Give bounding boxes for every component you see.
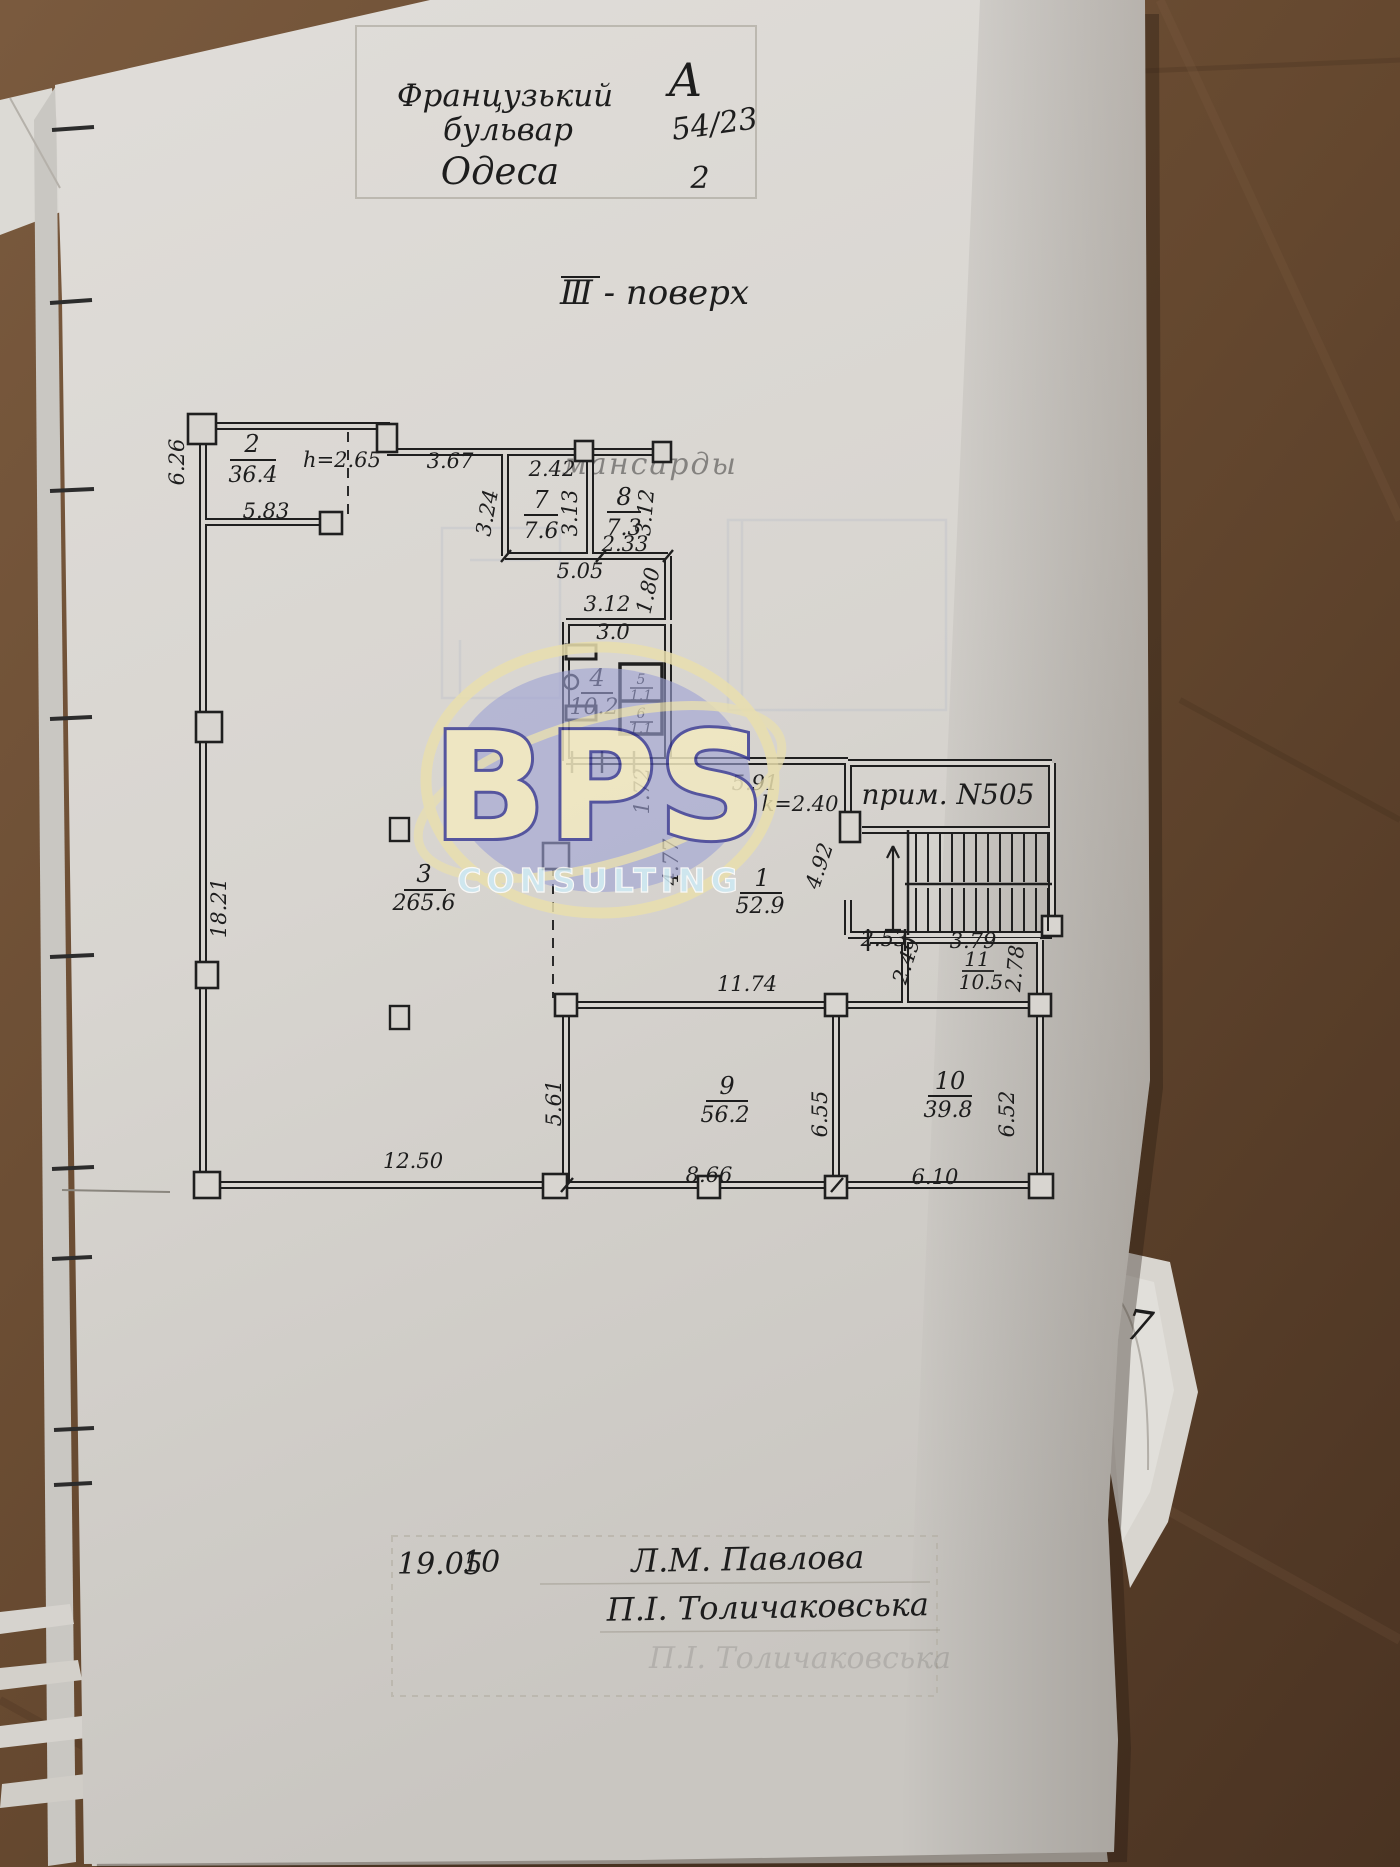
dim-label: 3.12 <box>631 488 659 537</box>
stamp-street-line2: бульвар <box>443 112 573 148</box>
dim-label: 6.55 <box>808 1091 832 1138</box>
dim-label: 2.42 <box>528 457 576 481</box>
dim-label: 3.13 <box>558 490 582 537</box>
dim-label: 3.79 <box>950 929 997 953</box>
scanned-page: 7 мансарды Французький бульв <box>0 0 1400 1867</box>
room-area: 52.9 <box>736 894 785 919</box>
room-area: 10.5 <box>959 970 1004 994</box>
room-area: 7.6 <box>524 519 559 544</box>
dim-label: 3.0 <box>596 620 629 644</box>
dim-label: 8.66 <box>686 1163 733 1187</box>
premise-label: прим. N505 <box>862 778 1035 811</box>
stamp-city: Одеса <box>441 150 559 193</box>
stamp-copy-number: 2 <box>689 161 709 196</box>
dim-label: 3.67 <box>427 449 474 473</box>
room-number: 7 <box>533 486 549 514</box>
signature-name-1: Л.М. Павлова <box>629 1538 865 1580</box>
dim-label: 6.26 <box>165 439 189 486</box>
logo-name: BPS <box>433 701 767 873</box>
floor-title-text: Ⅲ - поверх <box>559 273 749 313</box>
signature-ghost: П.І. Толичаковська <box>648 1641 951 1676</box>
photo-of-floor-plan-document: 7 мансарды Французький бульв <box>0 0 1400 1867</box>
dim-label: 11.74 <box>717 972 777 996</box>
dim-label: 18.21 <box>207 878 231 938</box>
signature-name-2: П.І. Толичаковська <box>605 1585 929 1629</box>
dim-label: 2.78 <box>1001 944 1029 994</box>
room-area: 36.4 <box>229 463 278 488</box>
dim-label: 3.12 <box>584 592 631 616</box>
room-number: 2 <box>243 430 259 458</box>
room-area: 265.6 <box>392 891 456 916</box>
room-area: 39.8 <box>924 1098 973 1123</box>
dim-label: 6.10 <box>912 1165 959 1189</box>
stamp-letter: А <box>665 53 703 107</box>
dim-label: 2.33 <box>601 532 649 556</box>
room-number: 8 <box>616 483 631 511</box>
dim-label: 5.61 <box>542 1080 566 1127</box>
room-area: 56.2 <box>701 1103 750 1128</box>
dim-label: 5.83 <box>243 499 290 523</box>
dim-label: 5.05 <box>557 559 604 583</box>
dim-label: 6.52 <box>995 1091 1019 1138</box>
logo-subtitle: CONSULTING <box>457 861 743 900</box>
stamp-street-line1: Французький <box>397 78 613 114</box>
signature-year: 10 <box>462 1545 500 1580</box>
room-number: 10 <box>935 1067 966 1095</box>
dim-label: h=2.65 <box>303 448 381 472</box>
dim-label: 12.50 <box>383 1149 443 1173</box>
floor-title: Ⅲ - поверх <box>559 273 749 313</box>
room-number: 9 <box>719 1072 734 1100</box>
